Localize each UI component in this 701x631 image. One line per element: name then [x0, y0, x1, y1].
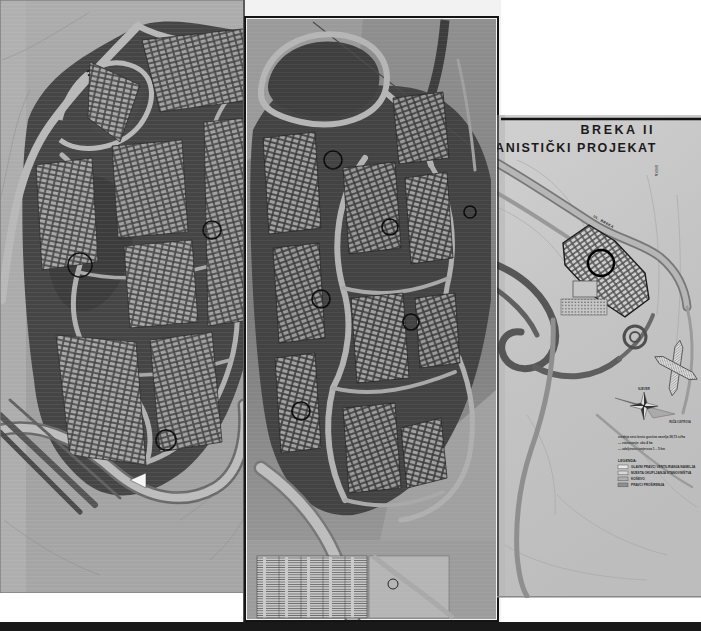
left-scan-streaks — [0, 0, 251, 593]
legend-label: GLAVNI PRAVCI VENTILIRANJA NASELJA — [631, 465, 696, 469]
legend-swatch — [618, 483, 628, 487]
note-line: — udaljenost smjerova 1 – 5 km — [618, 447, 665, 451]
compass-north-label: SJEVER — [638, 387, 651, 391]
title-line-2: URBANISTIČKI PROJEKAT — [497, 140, 657, 155]
dotted-block — [561, 299, 607, 315]
outline-building — [573, 281, 597, 297]
plan-sheet-center-drawing — [243, 0, 501, 624]
legend-row: PRAVCI PROŠIRENJA — [618, 482, 665, 487]
legend-heading: LEGENDA: — [618, 459, 637, 463]
note-line: — stanovanje: oko 4 ha — [618, 441, 653, 445]
note-line: srednja neto bruto gustina naselja 28,73… — [618, 435, 685, 439]
scanned-plan-page: BREKA II URBANISTIČKI PROJEKAT — [0, 0, 701, 631]
legend-label: KOŠEVO — [631, 476, 645, 481]
legend-swatch — [618, 477, 628, 481]
street-label-vertical: BREKA — [654, 165, 658, 177]
bottom-black-bar — [0, 622, 701, 631]
title-line-1: BREKA II — [581, 123, 655, 137]
plan-sheet-left-drawing — [0, 0, 251, 593]
legend-label: MJESTA OKUPLJANJA STANOVNIŠTVA — [631, 470, 692, 475]
plan-sheet-right: BREKA II URBANISTIČKI PROJEKAT — [497, 115, 701, 598]
plan-sheet-center — [243, 0, 501, 624]
right-sheet-paper — [497, 115, 701, 598]
legend-swatch — [618, 471, 628, 475]
legend-row: KOŠEVO — [618, 476, 645, 481]
center-scan-streaks — [247, 19, 496, 619]
plan-sheet-right-drawing: BREKA II URBANISTIČKI PROJEKAT — [497, 115, 701, 598]
legend-label: PRAVCI PROŠIRENJA — [631, 482, 665, 487]
legend-swatch — [618, 465, 628, 469]
plan-sheet-left — [0, 0, 251, 593]
